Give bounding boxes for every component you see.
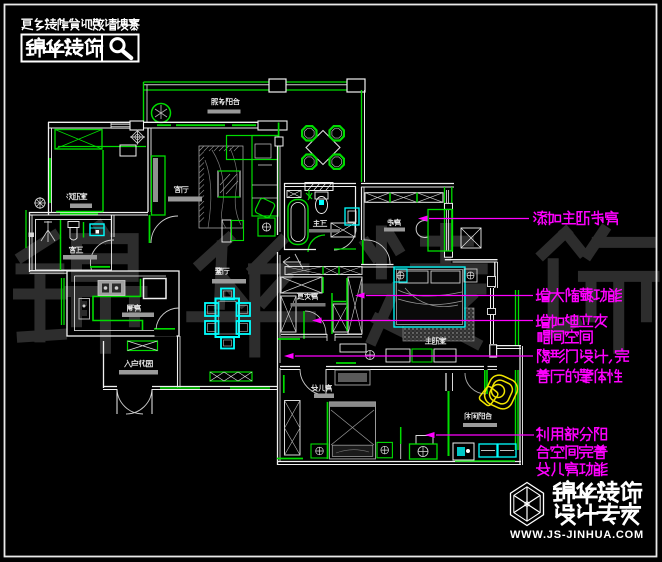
svg-text:WWW.JS-JINHUA.COM: WWW.JS-JINHUA.COM xyxy=(510,529,644,541)
